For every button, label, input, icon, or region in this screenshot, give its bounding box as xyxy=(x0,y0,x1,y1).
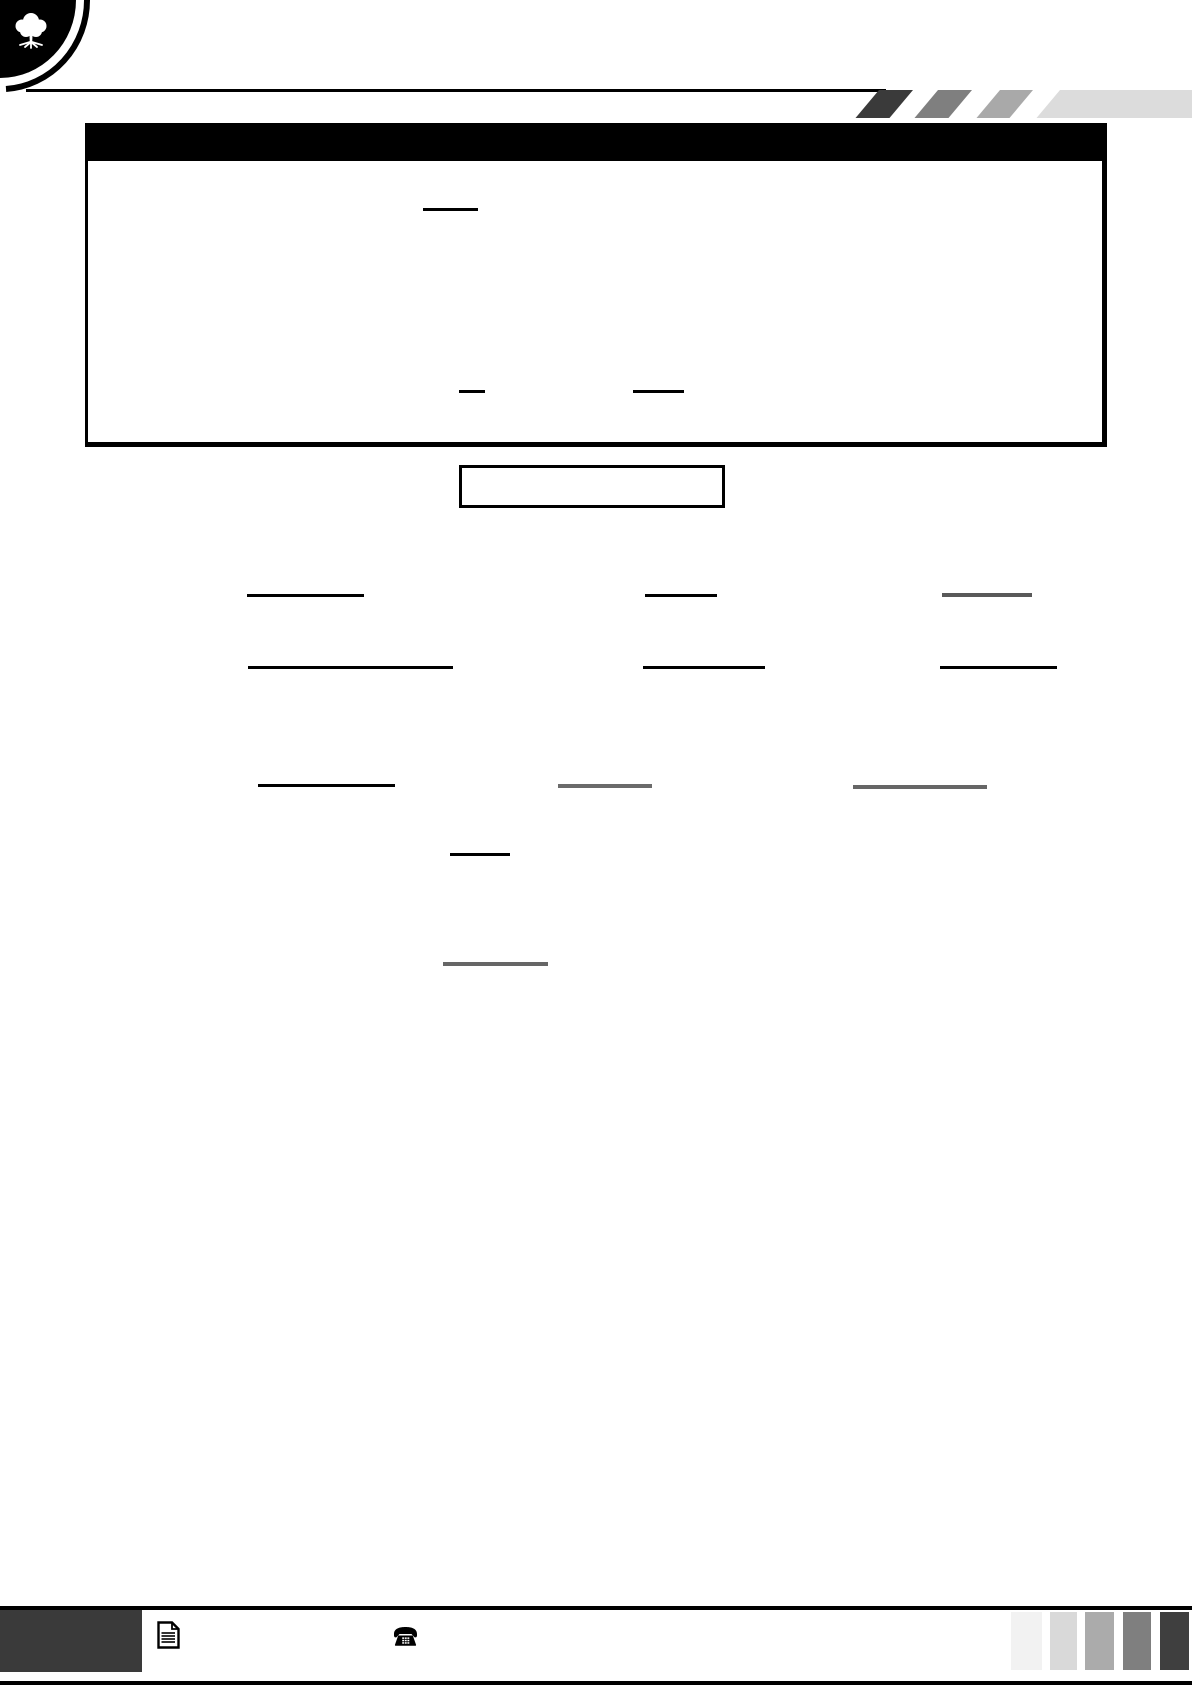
footer-accent-bar-3 xyxy=(1085,1612,1114,1670)
footer-accent-bar-2 xyxy=(1050,1612,1077,1670)
main-info-box xyxy=(85,123,1107,447)
accent-parallelogram-2 xyxy=(915,90,972,118)
footer-accent-bar-5 xyxy=(1160,1612,1189,1670)
blank-underline-3 xyxy=(633,390,684,393)
logo-quarter-disc xyxy=(0,0,76,78)
blank-underline-10 xyxy=(258,784,395,787)
header-rule xyxy=(26,89,886,92)
blank-underline-1 xyxy=(423,208,478,211)
blank-underline-5 xyxy=(645,594,717,597)
accent-parallelogram-3 xyxy=(977,90,1033,118)
blank-underline-14 xyxy=(443,962,548,966)
blank-underline-12 xyxy=(853,785,987,789)
blank-underline-7 xyxy=(248,666,453,669)
title-bar xyxy=(88,123,1102,161)
footer-accent-bar-4 xyxy=(1123,1612,1151,1670)
blank-underline-9 xyxy=(940,666,1057,669)
accent-parallelogram-1 xyxy=(856,90,913,118)
blank-underline-2 xyxy=(459,390,485,393)
blank-underline-13 xyxy=(450,853,510,856)
blank-underline-11 xyxy=(558,784,652,788)
blank-underline-8 xyxy=(643,666,765,669)
footer-label-box xyxy=(0,1610,142,1672)
footer-accent-bar-1 xyxy=(1011,1612,1042,1670)
footer-top-rule xyxy=(0,1606,1192,1610)
document-page xyxy=(0,0,1192,1685)
blank-underline-4 xyxy=(247,594,364,597)
document-icon xyxy=(157,1621,180,1649)
blank-underline-6 xyxy=(942,593,1032,597)
accent-parallelogram-4 xyxy=(1037,90,1192,118)
footer-bottom-rule xyxy=(0,1681,1192,1685)
org-logo xyxy=(0,0,130,120)
inner-box xyxy=(459,465,725,508)
phone-icon xyxy=(392,1626,419,1647)
